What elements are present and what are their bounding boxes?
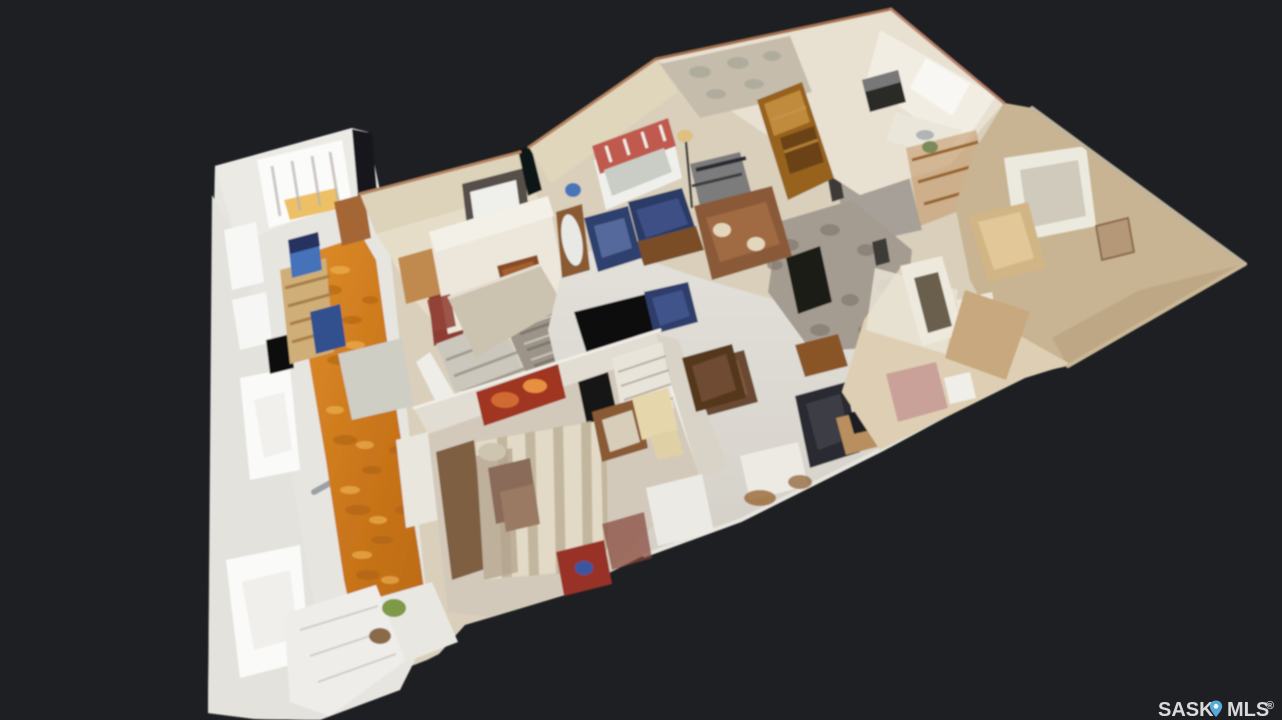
svg-text:SASK: SASK [1158, 699, 1214, 720]
svg-text:®: ® [1266, 700, 1274, 712]
svg-text:MLS: MLS [1227, 699, 1269, 720]
